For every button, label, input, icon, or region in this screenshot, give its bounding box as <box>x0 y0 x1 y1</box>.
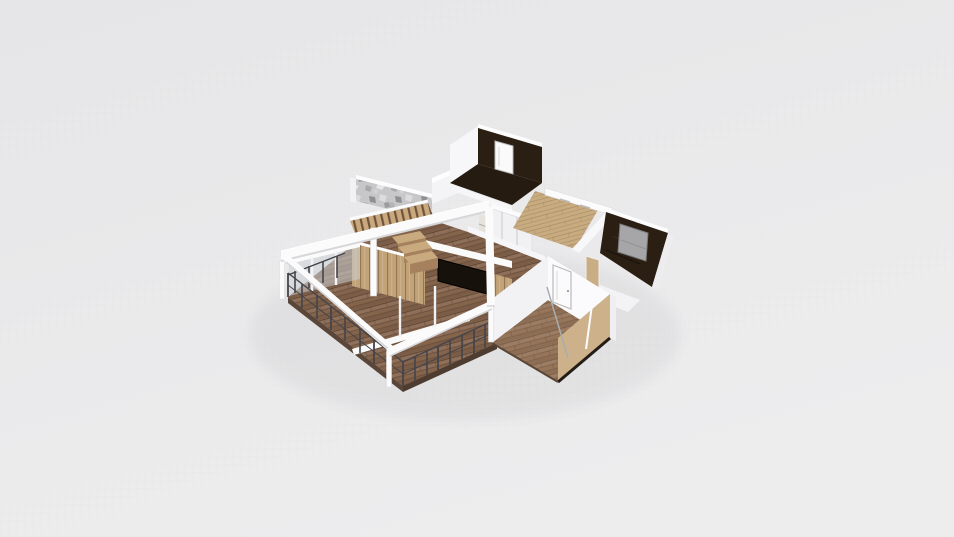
bathroom-door <box>495 141 513 174</box>
bedroom-door <box>553 265 571 309</box>
bedroom-outer-wall <box>610 294 616 341</box>
floorplan-3d-viewport[interactable] <box>0 0 954 537</box>
pergola-post-w <box>280 261 285 299</box>
floorplan-render[interactable] <box>0 0 954 537</box>
door-knob <box>567 290 569 292</box>
stone-wall-end <box>350 177 356 203</box>
